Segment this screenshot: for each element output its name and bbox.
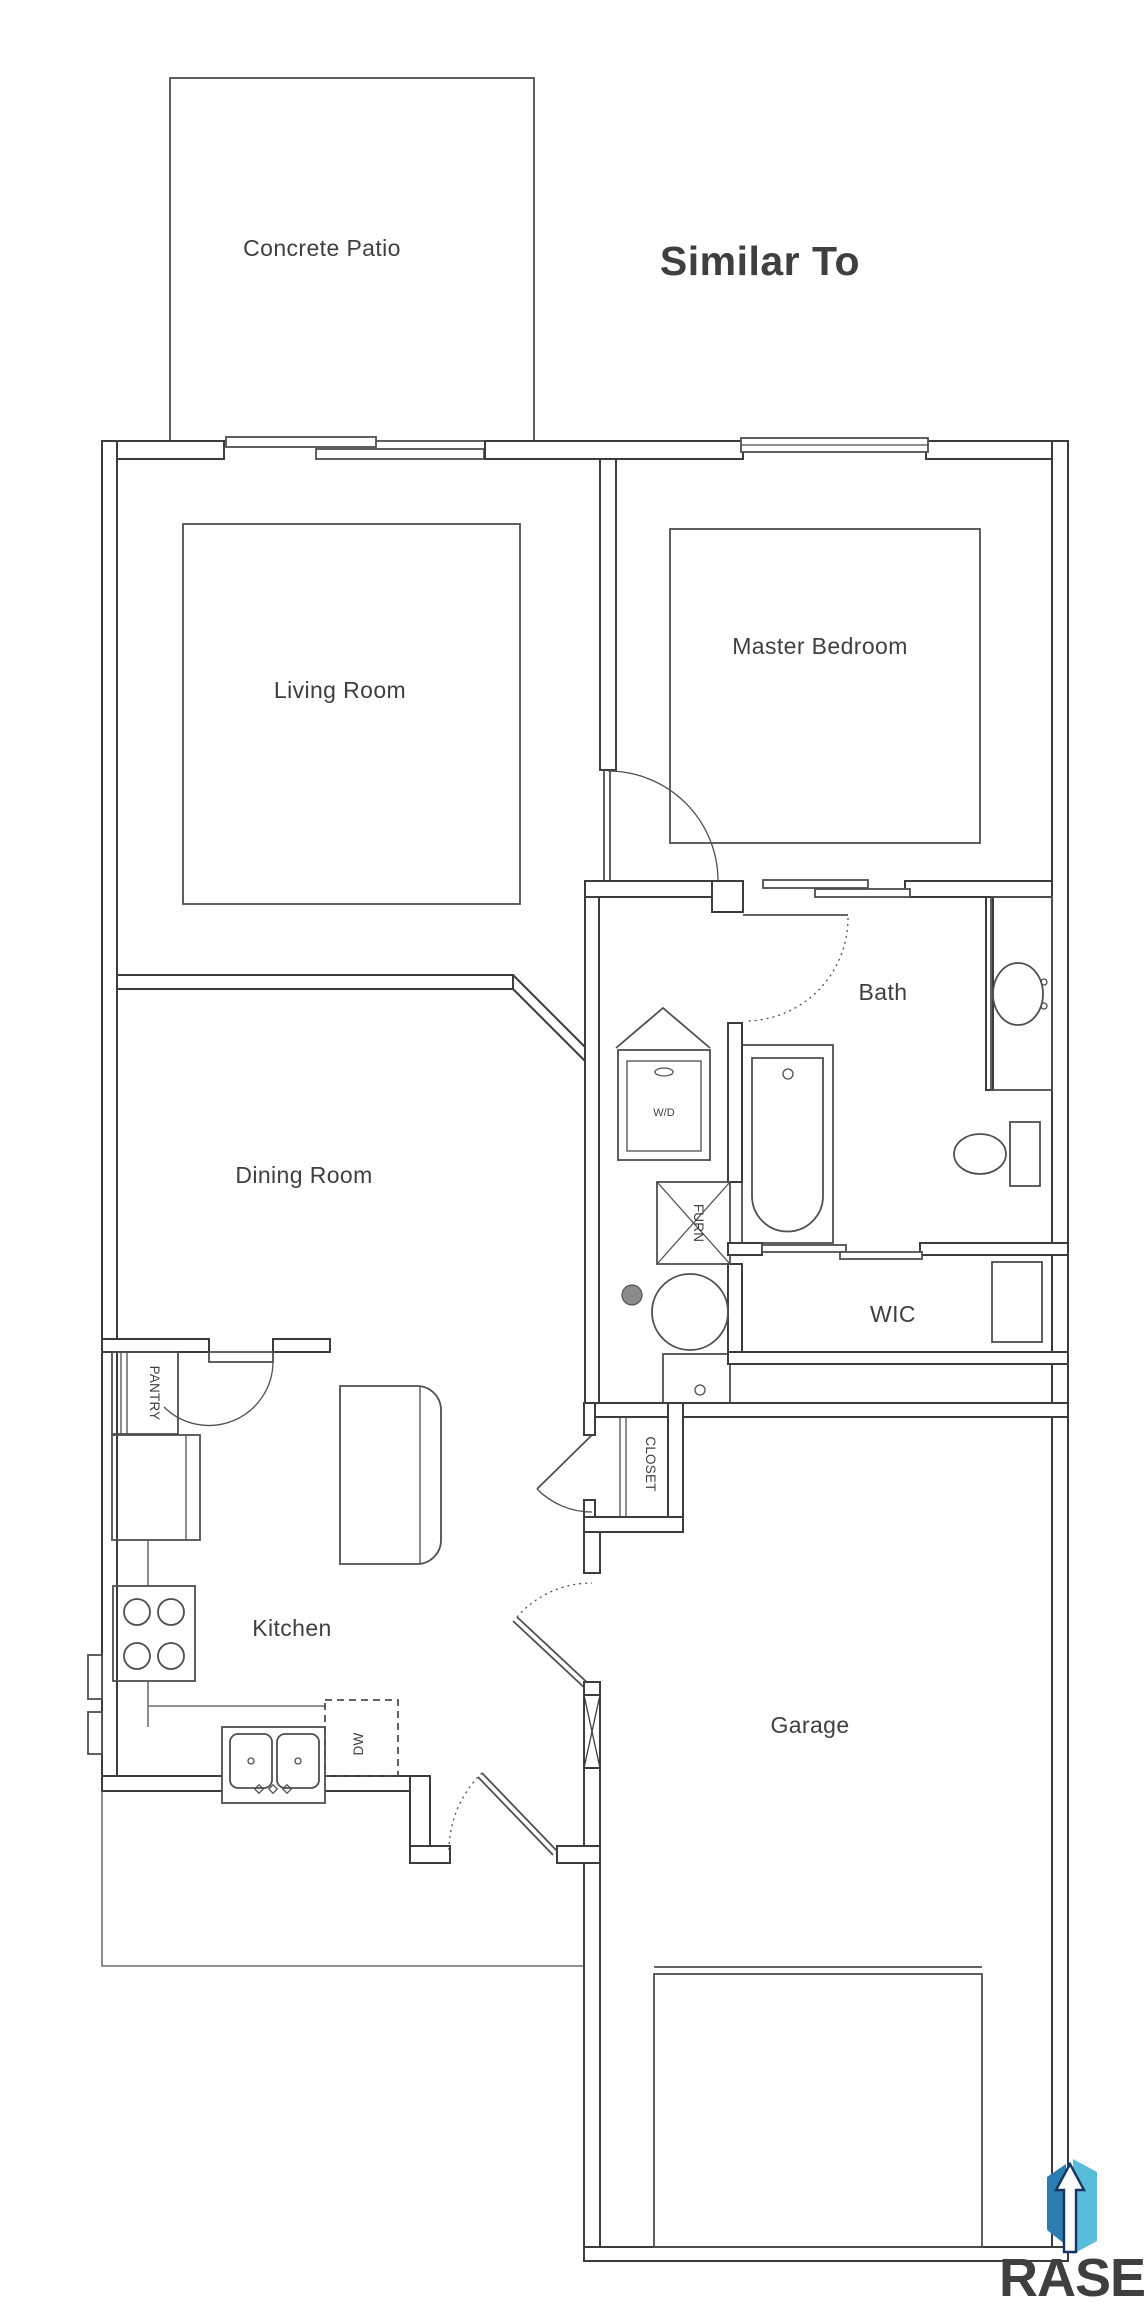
front-stoop-slab <box>102 1791 584 1966</box>
front-door <box>449 1773 557 1855</box>
walk-in-closet: WIC <box>728 1243 1068 1364</box>
coat-closet: CLOSET <box>584 1403 683 1532</box>
bath-label: Bath <box>859 979 908 1005</box>
master-bedroom-label: Master Bedroom <box>732 633 908 659</box>
concrete-patio-label: Concrete Patio <box>243 235 401 261</box>
kitchen-sink <box>222 1727 325 1803</box>
pantry-label: PANTRY <box>147 1366 162 1421</box>
laundry-corridor: W/D FURN <box>585 897 730 1405</box>
toilet <box>954 1122 1040 1186</box>
garage: Garage <box>654 1712 982 2247</box>
garage-service-door <box>513 1583 592 1691</box>
bath: Bath <box>728 897 1052 1352</box>
living-room-rug <box>183 524 520 904</box>
floor-plan-drawing: Similar To Concrete Patio Living Room Ma… <box>0 0 1147 2304</box>
post-column <box>584 1695 600 1768</box>
garage-door <box>654 1967 982 2247</box>
range-stove <box>113 1586 195 1681</box>
kitchen-label: Kitchen <box>252 1615 332 1641</box>
wic-label: WIC <box>870 1301 916 1327</box>
master-bedroom: Master Bedroom <box>585 459 1052 912</box>
dining-room-label: Dining Room <box>235 1162 372 1188</box>
bath-door-panel <box>763 880 868 888</box>
bath-door <box>743 915 848 1021</box>
living-room-label: Living Room <box>274 677 406 703</box>
bed <box>670 529 980 843</box>
wic-shelf <box>992 1262 1042 1342</box>
kitchen-island <box>340 1386 441 1564</box>
dishwasher-label: DW <box>351 1733 366 1756</box>
bedroom-door <box>604 771 718 881</box>
garage-label: Garage <box>770 1712 849 1738</box>
washer-dryer-label: W/D <box>653 1107 674 1119</box>
refrigerator <box>112 1435 200 1540</box>
floor-plan-page: Similar To Concrete Patio Living Room Ma… <box>0 0 1147 2304</box>
pantry: PANTRY <box>112 1352 178 1434</box>
bath-door-panel <box>815 889 910 897</box>
furnace-label: FURN <box>691 1204 706 1242</box>
concrete-patio: Concrete Patio <box>170 78 534 459</box>
living-room: Living Room <box>183 524 520 904</box>
pantry-door <box>164 1352 273 1425</box>
brand-name: RASE <box>999 2248 1145 2304</box>
wic-door-panel <box>840 1252 922 1259</box>
kitchen: Kitchen DW <box>88 1386 441 1803</box>
mechanical-box <box>663 1354 730 1403</box>
utility-box <box>88 1712 102 1754</box>
vanity-sink <box>993 963 1043 1025</box>
water-heater <box>652 1274 728 1350</box>
patio-slider-panel <box>316 449 484 459</box>
coat-closet-label: CLOSET <box>643 1436 658 1491</box>
furnace: FURN <box>657 1182 730 1264</box>
brand-logo: RASE <box>999 2159 1145 2304</box>
utility-box <box>88 1655 102 1699</box>
patio-slider-panel <box>226 437 376 447</box>
page-title: Similar To <box>660 238 860 284</box>
front-entry <box>102 1773 584 1966</box>
hall-and-garage-walls: CLOSET <box>513 1403 1068 1846</box>
dining-room: Dining Room PANTRY <box>102 975 585 1434</box>
bathtub <box>742 1045 833 1243</box>
floor-drain <box>622 1285 642 1305</box>
wic-door-panel <box>762 1245 846 1252</box>
dishwasher: DW <box>325 1700 398 1776</box>
washer-dryer: W/D <box>616 1008 710 1160</box>
